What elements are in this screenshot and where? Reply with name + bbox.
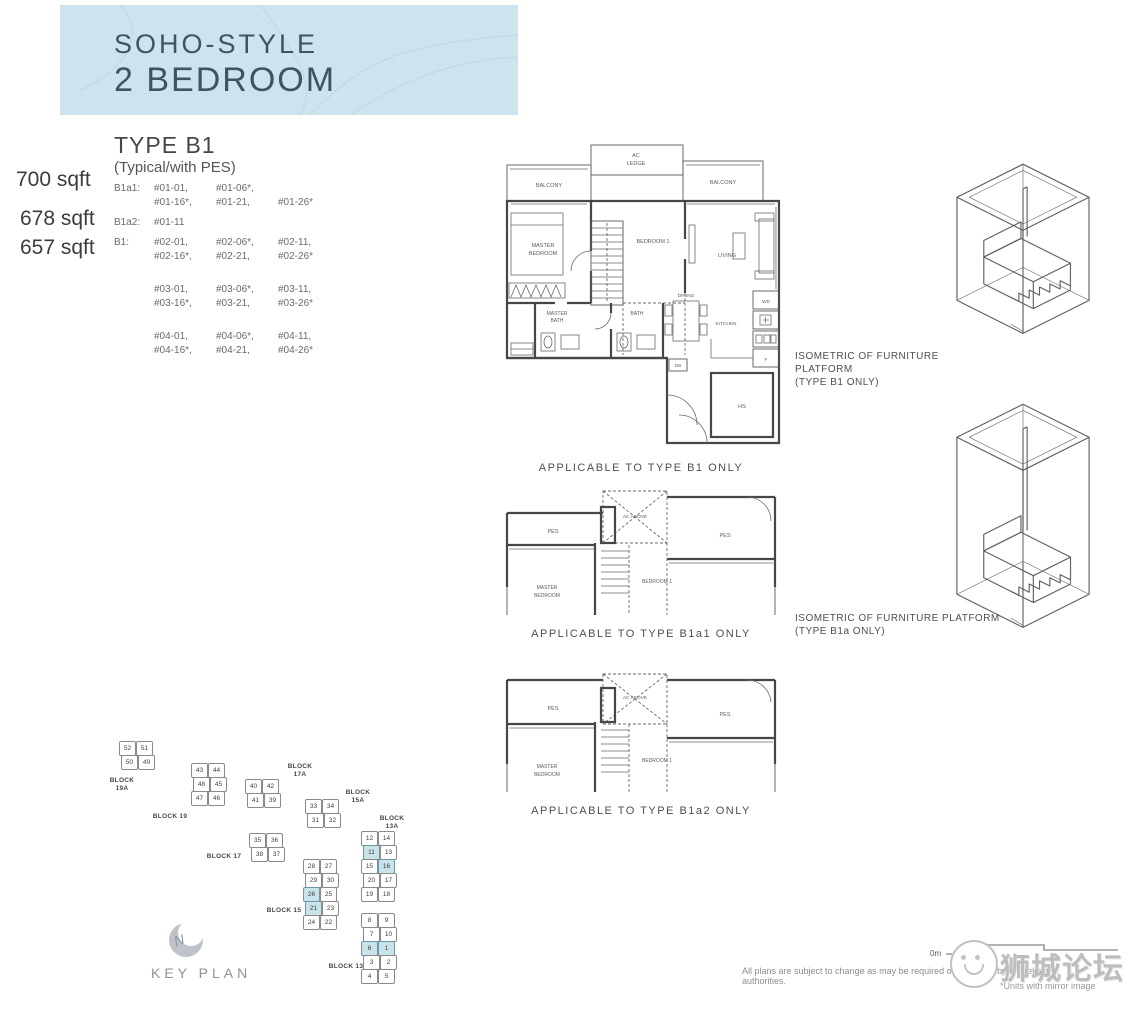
key-plan-label-block-15: BLOCK 15 <box>265 907 303 915</box>
key-plan-unit-23: 23 <box>322 901 339 916</box>
svg-text:BEDROOM: BEDROOM <box>534 593 560 599</box>
unit-number: #02-06*, <box>216 236 278 250</box>
key-plan-unit-37: 37 <box>268 847 285 862</box>
header-band: SOHO-STYLE 2 BEDROOM <box>60 5 518 115</box>
key-plan-unit-18: 18 <box>378 887 395 902</box>
isometric-b1a-drawing <box>938 398 1108 648</box>
unit-row-label: B1a2: <box>114 216 154 230</box>
svg-text:BEDROOM 1: BEDROOM 1 <box>642 579 672 585</box>
unit-number: #01-21, <box>216 196 278 210</box>
iso-caption-b1a-line1: ISOMETRIC OF FURNITURE PLATFORM <box>795 612 1005 625</box>
svg-text:KITCHEN: KITCHEN <box>715 321 737 327</box>
key-plan-unit-21: 21 <box>305 901 322 916</box>
unit-row-label: B1: <box>114 236 154 358</box>
key-plan-unit-45: 45 <box>210 777 227 792</box>
key-plan-label-block-13a: BLOCK 13A <box>373 815 411 830</box>
key-plan-label-block-17: BLOCK 17 <box>205 853 243 861</box>
key-plan-unit-52: 52 <box>119 741 136 756</box>
unit-number: #01-26* <box>278 196 340 210</box>
svg-text:AC ABOVE: AC ABOVE <box>623 514 647 520</box>
key-plan-label-block-17a: BLOCK 17A <box>281 763 319 778</box>
unit-number: #04-26* <box>278 344 340 358</box>
svg-text:AC: AC <box>632 153 640 159</box>
unit-number: #04-11, <box>278 330 340 344</box>
key-plan-unit-39: 39 <box>264 793 281 808</box>
key-plan-unit-24: 24 <box>303 915 320 930</box>
key-plan-unit-19: 19 <box>361 887 378 902</box>
unit-number: #03-11, <box>278 283 340 297</box>
forum-logo-icon <box>950 940 998 988</box>
unit-group: #02-01,#02-06*,#02-11,#02-16*,#02-21,#02… <box>154 236 340 264</box>
svg-text:BEDROOM: BEDROOM <box>529 251 558 257</box>
unit-number: #03-01, <box>154 283 216 297</box>
unit-number: #02-21, <box>216 250 278 264</box>
caption-type-b1a2: APPLICABLE TO TYPE B1a2 ONLY <box>495 805 787 817</box>
key-plan-unit-20: 20 <box>363 873 380 888</box>
unit-number: #03-21, <box>216 297 278 311</box>
iso-caption-b1a-line2: (TYPE B1a ONLY) <box>795 625 1005 638</box>
unit-number: #02-16*, <box>154 250 216 264</box>
north-label: N <box>172 931 187 949</box>
area-678: 678 sqft <box>20 207 95 231</box>
key-plan-unit-50: 50 <box>121 755 138 770</box>
unit-number: #03-06*, <box>216 283 278 297</box>
unit-number: #03-16*, <box>154 297 216 311</box>
key-plan-unit-8: 8 <box>361 913 378 928</box>
page-title-line1: SOHO-STYLE <box>114 29 318 60</box>
unit-group: #01-01,#01-06*,#01-16*,#01-21,#01-26* <box>154 182 340 210</box>
svg-text:BATH: BATH <box>631 311 644 317</box>
iso-caption-b1-line1: ISOMETRIC OF FURNITURE PLATFORM <box>795 350 995 376</box>
key-plan-unit-13: 13 <box>380 845 397 860</box>
svg-text:HS: HS <box>738 404 746 410</box>
svg-text:BEDROOM: BEDROOM <box>534 772 560 778</box>
unit-number: #04-06*, <box>216 330 278 344</box>
unit-number: #02-11, <box>278 236 340 250</box>
svg-text:DB: DB <box>675 363 681 368</box>
key-plan-unit-35: 35 <box>249 833 266 848</box>
key-plan-unit-40: 40 <box>245 779 262 794</box>
key-plan-unit-30: 30 <box>322 873 339 888</box>
unit-number: #02-26* <box>278 250 340 264</box>
key-plan-title: KEY PLAN <box>151 965 251 981</box>
area-657: 657 sqft <box>20 236 95 260</box>
svg-text:DINING: DINING <box>678 293 695 299</box>
north-arrow-icon: N <box>169 923 203 957</box>
floorplan-type-b1a2: AC ABOVE PES PES BEDROOM 1 MASTER BEDROO… <box>495 668 787 817</box>
unit-group: #01-11 <box>154 216 340 230</box>
key-plan-unit-9: 9 <box>378 913 395 928</box>
svg-text:BALCONY: BALCONY <box>710 180 737 186</box>
svg-text:0m: 0m <box>930 949 941 958</box>
unit-row-label: B1a1: <box>114 182 154 210</box>
key-plan-unit-26: 26 <box>303 887 320 902</box>
unit-number <box>278 216 340 230</box>
svg-text:MASTER: MASTER <box>537 585 558 591</box>
key-plan-unit-25: 25 <box>320 887 337 902</box>
unit-number: #04-01, <box>154 330 216 344</box>
key-plan-blocks: 52515049BLOCK 19A434448454746BLOCK 19404… <box>103 735 415 1020</box>
key-plan-unit-29: 29 <box>305 873 322 888</box>
key-plan-unit-51: 51 <box>136 741 153 756</box>
unit-number: #01-01, <box>154 182 216 196</box>
svg-text:MASTER: MASTER <box>547 311 568 317</box>
key-plan-unit-32: 32 <box>324 813 341 828</box>
iso-caption-b1a: ISOMETRIC OF FURNITURE PLATFORM (TYPE B1… <box>795 612 1005 638</box>
key-plan-label-block-15a: BLOCK 15A <box>339 789 377 804</box>
key-plan-unit-42: 42 <box>262 779 279 794</box>
key-plan-unit-14: 14 <box>378 831 395 846</box>
key-plan-unit-41: 41 <box>247 793 264 808</box>
unit-row: B1a1:#01-01,#01-06*,#01-16*,#01-21,#01-2… <box>114 182 414 210</box>
unit-row: B1a2:#01-11 <box>114 216 414 230</box>
key-plan-unit-27: 27 <box>320 859 337 874</box>
key-plan-unit-49: 49 <box>138 755 155 770</box>
type-title: TYPE B1 <box>114 132 216 159</box>
floorplan-b1a1-drawing: AC ABOVE PES PES BEDROOM 1 MASTER BEDROO… <box>495 487 787 621</box>
svg-text:BEDROOM 1: BEDROOM 1 <box>642 758 672 764</box>
iso-caption-b1: ISOMETRIC OF FURNITURE PLATFORM (TYPE B1… <box>795 350 995 389</box>
key-plan-unit-44: 44 <box>208 763 225 778</box>
key-plan-unit-10: 10 <box>380 927 397 942</box>
key-plan-unit-3: 3 <box>363 955 380 970</box>
key-plan-label-block-19: BLOCK 19 <box>151 813 189 821</box>
key-plan-unit-12: 12 <box>361 831 378 846</box>
floorplan-type-b1a1: AC ABOVE PES PES BEDROOM 1 MASTER BEDROO… <box>495 487 787 640</box>
unit-number: #04-16*, <box>154 344 216 358</box>
svg-text:AC ABOVE: AC ABOVE <box>623 695 647 701</box>
caption-type-b1: APPLICABLE TO TYPE B1 ONLY <box>495 462 787 474</box>
unit-group: #04-01,#04-06*,#04-11,#04-16*,#04-21,#04… <box>154 330 340 358</box>
key-plan-unit-5: 5 <box>378 969 395 984</box>
key-plan-unit-17: 17 <box>380 873 397 888</box>
svg-text:WD: WD <box>762 299 771 305</box>
key-plan-unit-33: 33 <box>305 799 322 814</box>
unit-number <box>278 182 340 196</box>
unit-number: #03-26* <box>278 297 340 311</box>
key-plan-unit-15: 15 <box>361 859 378 874</box>
key-plan-label-block-19a: BLOCK 19A <box>103 777 141 792</box>
key-plan: 52515049BLOCK 19A434448454746BLOCK 19404… <box>103 735 415 1020</box>
key-plan-unit-7: 7 <box>363 927 380 942</box>
unit-number: #01-11 <box>154 216 216 230</box>
svg-text:BALCONY: BALCONY <box>536 183 563 189</box>
svg-text:PES: PES <box>719 712 730 718</box>
caption-type-b1a1: APPLICABLE TO TYPE B1a1 ONLY <box>495 628 787 640</box>
key-plan-unit-1: 1 <box>378 941 395 956</box>
page-title-line2: 2 BEDROOM <box>114 61 336 100</box>
unit-number: #02-01, <box>154 236 216 250</box>
key-plan-unit-28: 28 <box>303 859 320 874</box>
key-plan-unit-34: 34 <box>322 799 339 814</box>
key-plan-unit-16: 16 <box>378 859 395 874</box>
key-plan-unit-6: 6 <box>361 941 378 956</box>
watermark-text: 狮城论坛 <box>1000 944 1124 988</box>
key-plan-unit-47: 47 <box>191 791 208 806</box>
key-plan-unit-43: 43 <box>191 763 208 778</box>
svg-text:BATH: BATH <box>551 318 564 324</box>
key-plan-unit-31: 31 <box>307 813 324 828</box>
key-plan-unit-36: 36 <box>266 833 283 848</box>
area-700: 700 sqft <box>16 168 91 192</box>
isometric-b1 <box>938 158 1108 359</box>
key-plan-unit-46: 46 <box>208 791 225 806</box>
type-subtitle: (Typical/with PES) <box>114 159 236 176</box>
watermark: 狮城论坛 <box>948 936 1148 994</box>
svg-text:F: F <box>765 357 768 363</box>
svg-text:PES: PES <box>547 529 558 535</box>
iso-caption-b1-line2: (TYPE B1 ONLY) <box>795 376 995 389</box>
floorplan-b1-drawing: AC LEDGE BALCONY BALCONY MASTER BEDROOM … <box>495 143 787 455</box>
svg-text:MASTER: MASTER <box>537 764 558 770</box>
svg-text:PES: PES <box>719 533 730 539</box>
unit-number: #01-06*, <box>216 182 278 196</box>
key-plan-unit-11: 11 <box>363 845 380 860</box>
floorplan-type-b1: AC LEDGE BALCONY BALCONY MASTER BEDROOM … <box>495 143 787 474</box>
unit-number: #01-16*, <box>154 196 216 210</box>
floorplan-b1a2-drawing: AC ABOVE PES PES BEDROOM 1 MASTER BEDROO… <box>495 668 787 796</box>
svg-text:BEDROOM 1: BEDROOM 1 <box>636 239 669 245</box>
isometric-b1-drawing <box>938 158 1108 354</box>
svg-text:PES: PES <box>547 706 558 712</box>
key-plan-unit-38: 38 <box>251 847 268 862</box>
key-plan-label-block-13: BLOCK 13 <box>327 963 365 971</box>
key-plan-unit-22: 22 <box>320 915 337 930</box>
unit-number <box>216 216 278 230</box>
unit-number: #04-21, <box>216 344 278 358</box>
unit-list: B1a1:#01-01,#01-06*,#01-16*,#01-21,#01-2… <box>114 182 414 364</box>
svg-text:LEDGE: LEDGE <box>627 161 646 167</box>
unit-group: #03-01,#03-06*,#03-11,#03-16*,#03-21,#03… <box>154 283 340 311</box>
key-plan-unit-2: 2 <box>380 955 397 970</box>
unit-row: B1:#02-01,#02-06*,#02-11,#02-16*,#02-21,… <box>114 236 414 358</box>
key-plan-unit-48: 48 <box>193 777 210 792</box>
key-plan-unit-4: 4 <box>361 969 378 984</box>
svg-text:MASTER: MASTER <box>532 243 555 249</box>
